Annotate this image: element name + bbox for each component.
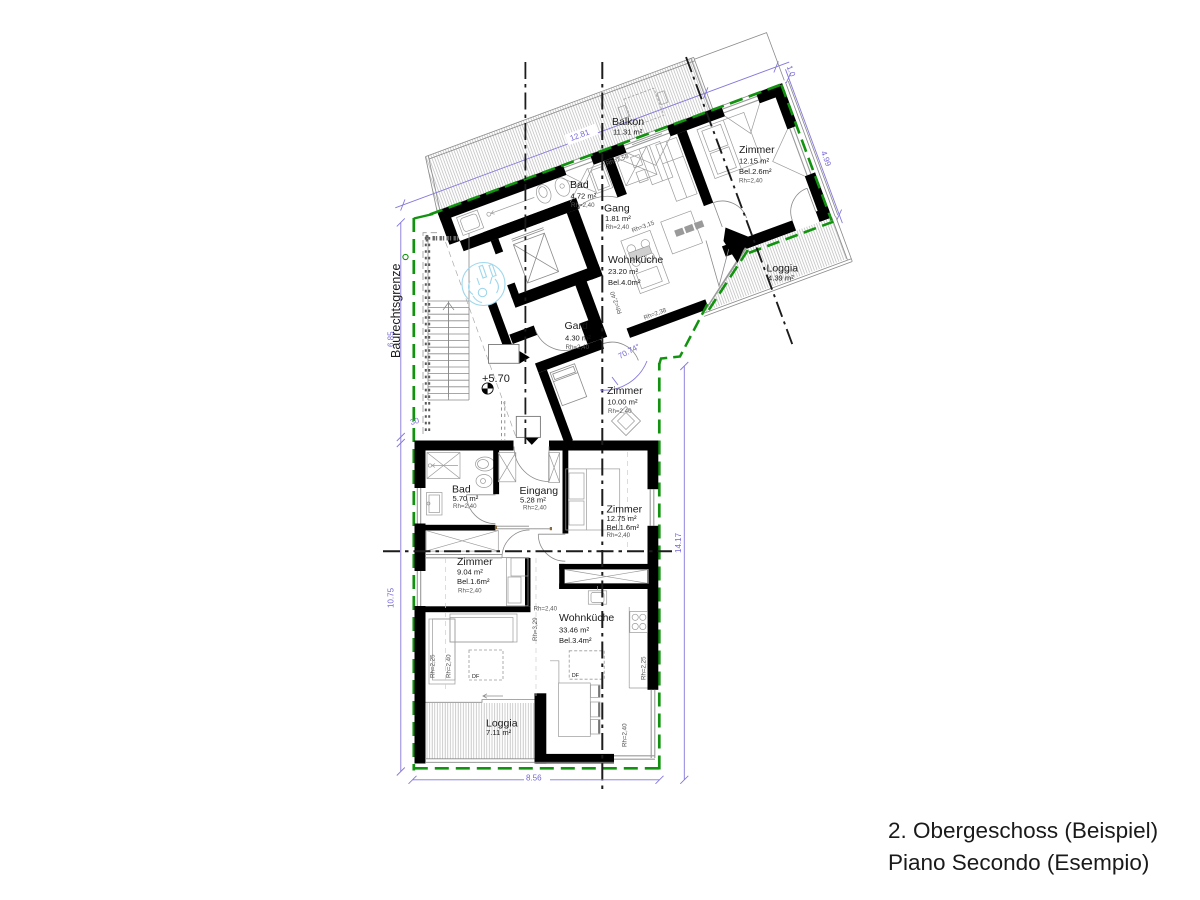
svg-text:Rh=2,40: Rh=2,40 <box>534 606 558 613</box>
svg-text:Bad: Bad <box>570 179 589 191</box>
svg-text:Bel.2.6m²: Bel.2.6m² <box>739 167 772 176</box>
svg-text:12.15 m²: 12.15 m² <box>739 157 769 166</box>
svg-text:Baurechtsgrenze: Baurechtsgrenze <box>389 263 403 358</box>
svg-text:Zimmer: Zimmer <box>739 144 775 156</box>
svg-text:Rh=3,29: Rh=3,29 <box>532 617 539 641</box>
svg-text:Rh=2,40: Rh=2,40 <box>608 408 632 415</box>
svg-text:Rh=2,40: Rh=2,40 <box>446 654 453 678</box>
svg-text:Rh=2,40: Rh=2,40 <box>607 532 631 539</box>
svg-text:11.31 m²: 11.31 m² <box>613 128 643 137</box>
svg-text:23.20 m²: 23.20 m² <box>608 267 638 276</box>
svg-text:Rh=2,40: Rh=2,40 <box>458 588 482 595</box>
svg-text:Rh=2,40: Rh=2,40 <box>453 503 477 510</box>
svg-text:10.75: 10.75 <box>387 587 396 608</box>
svg-text:+5.70: +5.70 <box>482 373 510 385</box>
svg-text:4.30 m²: 4.30 m² <box>565 334 591 343</box>
svg-text:Rh=2,40: Rh=2,40 <box>606 224 630 231</box>
svg-text:12.75 m²: 12.75 m² <box>607 514 637 523</box>
svg-text:7.11 m²: 7.11 m² <box>486 728 512 737</box>
svg-text:14.17: 14.17 <box>674 532 683 553</box>
svg-text:Bel.4.0m²: Bel.4.0m² <box>608 278 641 287</box>
svg-text:2. Obergeschoss (Beispiel): 2. Obergeschoss (Beispiel) <box>888 818 1158 843</box>
svg-text:4.72 m²: 4.72 m² <box>571 192 597 201</box>
svg-text:Rh=2,40: Rh=2,40 <box>571 202 595 209</box>
svg-text:Rh=2,25: Rh=2,25 <box>430 654 437 678</box>
svg-text:Piano Secondo (Esempio): Piano Secondo (Esempio) <box>888 850 1149 875</box>
svg-text:5.70 m²: 5.70 m² <box>453 494 479 503</box>
svg-text:DF: DF <box>472 674 480 680</box>
svg-text:Bel.3.4m²: Bel.3.4m² <box>559 636 592 645</box>
svg-text:Wohnküche: Wohnküche <box>608 254 663 266</box>
svg-text:Rh=2,40: Rh=2,40 <box>523 505 547 512</box>
svg-text:Bel.1.6m²: Bel.1.6m² <box>457 577 490 586</box>
svg-text:Rh=2,25: Rh=2,25 <box>641 656 648 680</box>
svg-text:33.46 m²: 33.46 m² <box>559 626 589 635</box>
svg-text:Rh=2,40: Rh=2,40 <box>622 723 629 747</box>
svg-text:Rh=2,40: Rh=2,40 <box>739 178 763 185</box>
svg-text:Gard: Gard <box>565 320 589 332</box>
svg-text:5.28 m²: 5.28 m² <box>520 496 546 505</box>
svg-text:4.39 m²: 4.39 m² <box>768 274 794 283</box>
svg-text:Bel.1.6m²: Bel.1.6m² <box>607 523 640 532</box>
svg-text:8.56: 8.56 <box>526 774 542 783</box>
svg-text:Zimmer: Zimmer <box>607 385 643 397</box>
svg-text:Balkon: Balkon <box>612 116 644 128</box>
svg-text:Gang: Gang <box>604 203 630 215</box>
svg-text:DF: DF <box>572 673 580 679</box>
svg-text:Zimmer: Zimmer <box>457 556 493 568</box>
svg-text:Rh=2,40: Rh=2,40 <box>566 344 590 351</box>
svg-text:9.04 m²: 9.04 m² <box>457 568 483 577</box>
svg-text:1.81 m²: 1.81 m² <box>605 214 631 223</box>
svg-text:10.00 m²: 10.00 m² <box>608 398 638 407</box>
svg-text:Wohnküche: Wohnküche <box>559 612 614 624</box>
